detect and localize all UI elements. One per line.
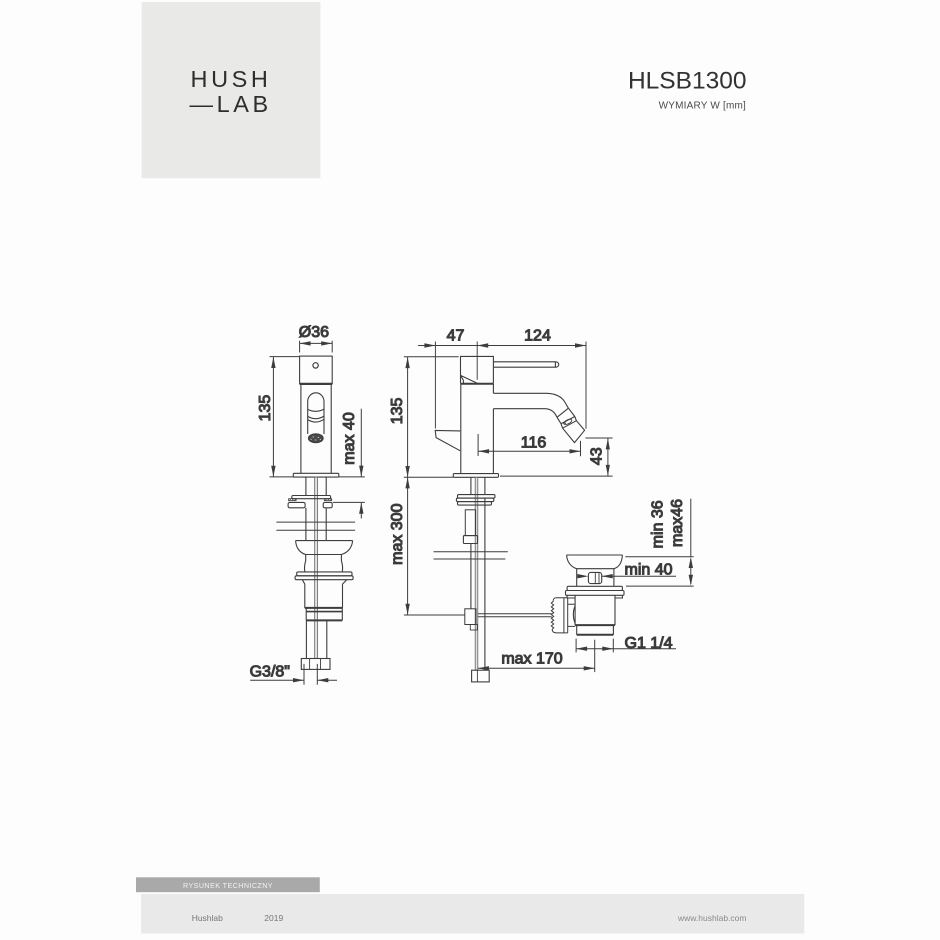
svg-text:max46: max46 xyxy=(669,499,686,547)
svg-text:RYSUNEK TECHNICZNY: RYSUNEK TECHNICZNY xyxy=(183,881,273,890)
svg-text:43: 43 xyxy=(589,447,606,465)
svg-text:Hushlab: Hushlab xyxy=(192,913,223,923)
svg-text:124: 124 xyxy=(524,328,551,345)
svg-text:HUSH: HUSH xyxy=(191,66,272,92)
svg-text:WYMIARY W [mm]: WYMIARY W [mm] xyxy=(659,101,746,112)
svg-text:min 36: min 36 xyxy=(650,500,667,548)
svg-text:135: 135 xyxy=(389,397,406,424)
svg-text:HLSB1300: HLSB1300 xyxy=(628,68,747,95)
svg-text:135: 135 xyxy=(257,395,274,422)
svg-text:2019: 2019 xyxy=(264,913,283,923)
svg-text:G3/8": G3/8" xyxy=(250,663,290,680)
svg-text:G1 1/4: G1 1/4 xyxy=(625,635,673,652)
svg-text:—LAB: —LAB xyxy=(190,91,272,117)
svg-text:min 40: min 40 xyxy=(625,562,673,579)
svg-text:47: 47 xyxy=(447,328,465,345)
svg-text:max 170: max 170 xyxy=(501,651,562,668)
svg-text:www.hushlab.com: www.hushlab.com xyxy=(677,913,747,923)
svg-text:max 40: max 40 xyxy=(341,412,358,465)
svg-text:max 300: max 300 xyxy=(389,503,406,564)
svg-text:Ø36: Ø36 xyxy=(299,324,329,341)
svg-text:116: 116 xyxy=(521,435,547,452)
